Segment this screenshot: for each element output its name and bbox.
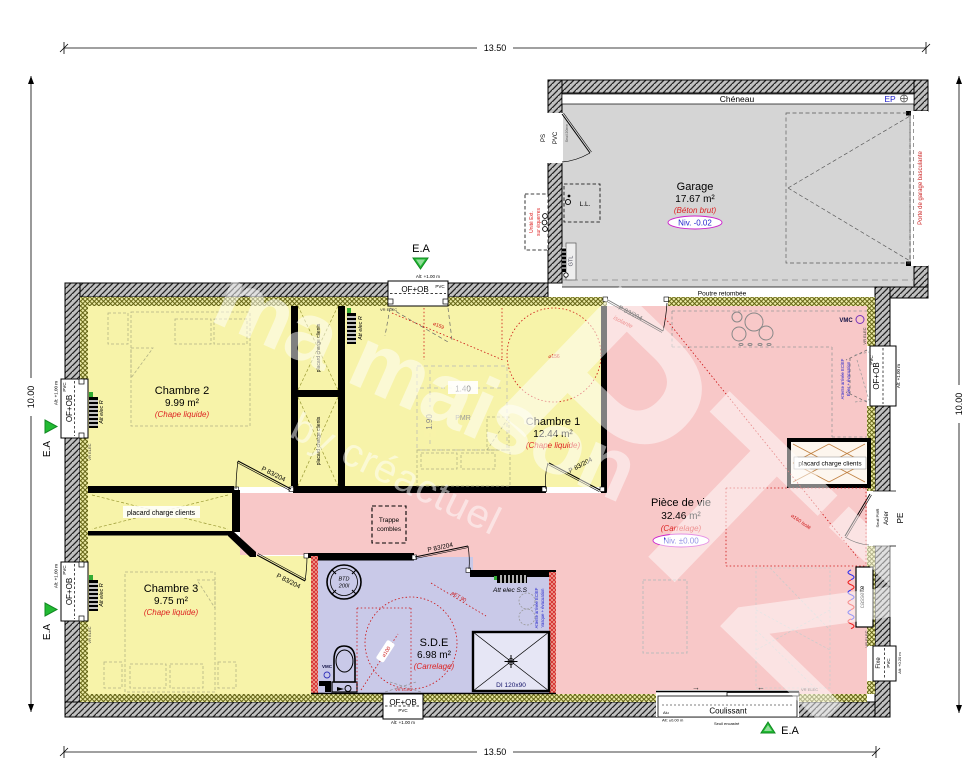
svg-text:Alt: ±0.00 m: Alt: ±0.00 m [662, 718, 684, 723]
svg-text:PVC: PVC [869, 355, 874, 365]
svg-text:Alu: Alu [663, 710, 669, 715]
svg-text:(Carrelage): (Carrelage) [414, 662, 455, 671]
svg-text:6.98 m²: 6.98 m² [417, 650, 452, 661]
svg-text:Unité Ext.: Unité Ext. [529, 211, 535, 233]
svg-text:Chambre 2: Chambre 2 [155, 385, 209, 397]
svg-text:Chéneau: Chéneau [720, 94, 755, 104]
svg-text:10.00: 10.00 [954, 393, 964, 416]
svg-text:placard charge clients: placard charge clients [127, 510, 196, 517]
svg-text:10.00: 10.00 [26, 386, 36, 409]
svg-text:Alt: +1.00 m: Alt: +1.00 m [896, 364, 901, 388]
svg-text:Att elec S.S: Att elec S.S [492, 587, 528, 594]
svg-text:VR ELEC: VR ELEC [395, 687, 412, 692]
svg-text:13.50: 13.50 [484, 43, 507, 53]
svg-text:L.L.: L.L. [580, 201, 591, 208]
svg-text:9.75 m²: 9.75 m² [154, 596, 189, 607]
svg-text:13.50: 13.50 [484, 747, 507, 757]
svg-text:(Chape liquide): (Chape liquide) [155, 410, 210, 419]
svg-text:Attente arrivée EC/EF: Attente arrivée EC/EF [534, 587, 539, 628]
svg-text:Alt elec R: Alt elec R [99, 400, 105, 425]
svg-text:17.67 m²: 17.67 m² [675, 194, 715, 205]
svg-text:Alt: +1.00 m: Alt: +1.00 m [54, 381, 59, 405]
svg-text:Évier + évacuation: Évier + évacuation [846, 361, 851, 396]
svg-text:PVC: PVC [398, 708, 408, 713]
svg-text:Alt: +0.20 m: Alt: +0.20 m [897, 652, 902, 674]
svg-text:VMC: VMC [322, 664, 333, 669]
svg-text:Alt: +1.00 m: Alt: +1.00 m [416, 274, 440, 279]
svg-text:DI 120x90: DI 120x90 [496, 682, 526, 689]
svg-text:(Béton brut): (Béton brut) [674, 206, 717, 215]
svg-text:200l: 200l [338, 584, 350, 590]
svg-text:Trappe: Trappe [379, 517, 400, 524]
svg-text:Niv. -0.02: Niv. -0.02 [678, 219, 712, 228]
svg-text:Alt elec R: Alt elec R [99, 583, 105, 608]
svg-text:BTD: BTD [339, 577, 350, 583]
svg-text:E.A: E.A [42, 441, 53, 457]
svg-text:EP: EP [884, 94, 896, 104]
svg-text:→: → [692, 683, 700, 692]
svg-text:Chambre 3: Chambre 3 [144, 583, 198, 595]
svg-text:Alt: +1.00 m: Alt: +1.00 m [391, 720, 415, 725]
svg-text:GTL: GTL [569, 256, 575, 267]
svg-text:VR ELEC: VR ELEC [862, 327, 867, 344]
svg-text:PVC: PVC [62, 565, 67, 575]
svg-text:S.D.E: S.D.E [420, 637, 449, 649]
svg-text:Alt: +1.00 m: Alt: +1.00 m [54, 564, 59, 588]
svg-text:PS: PS [541, 134, 547, 142]
svg-text:E.A: E.A [42, 624, 53, 640]
svg-text:(Chape liquide): (Chape liquide) [144, 608, 199, 617]
svg-text:Garage: Garage [677, 181, 714, 193]
svg-text:Attente arrivée EC/EF: Attente arrivée EC/EF [840, 358, 845, 399]
svg-text:VMC: VMC [839, 318, 853, 324]
svg-text:Seuil 20mm: Seuil 20mm [565, 124, 569, 143]
svg-text:OF+OB: OF+OB [65, 395, 74, 422]
svg-text:VR ELEC: VR ELEC [87, 443, 92, 460]
svg-text:OF+OB: OF+OB [401, 285, 428, 294]
svg-text:OF+OB: OF+OB [65, 578, 74, 605]
svg-text:OF+OB: OF+OB [389, 698, 416, 707]
svg-text:sur équerres: sur équerres [536, 207, 542, 236]
svg-text:E.A: E.A [412, 243, 430, 255]
svg-text:PVC: PVC [62, 382, 67, 392]
svg-text:Vasque + évacuation: Vasque + évacuation [540, 588, 545, 628]
svg-text:VR ELEC: VR ELEC [87, 626, 92, 643]
svg-text:PVC: PVC [435, 284, 445, 289]
svg-text:OF+OB: OF+OB [872, 362, 881, 389]
svg-text:Seuil encastré: Seuil encastré [714, 721, 740, 726]
svg-text:Porte de garage basculante: Porte de garage basculante [918, 150, 924, 224]
svg-text:9.99 m²: 9.99 m² [165, 398, 200, 409]
svg-text:PVC: PVC [553, 131, 559, 144]
svg-text:combles: combles [377, 526, 402, 533]
